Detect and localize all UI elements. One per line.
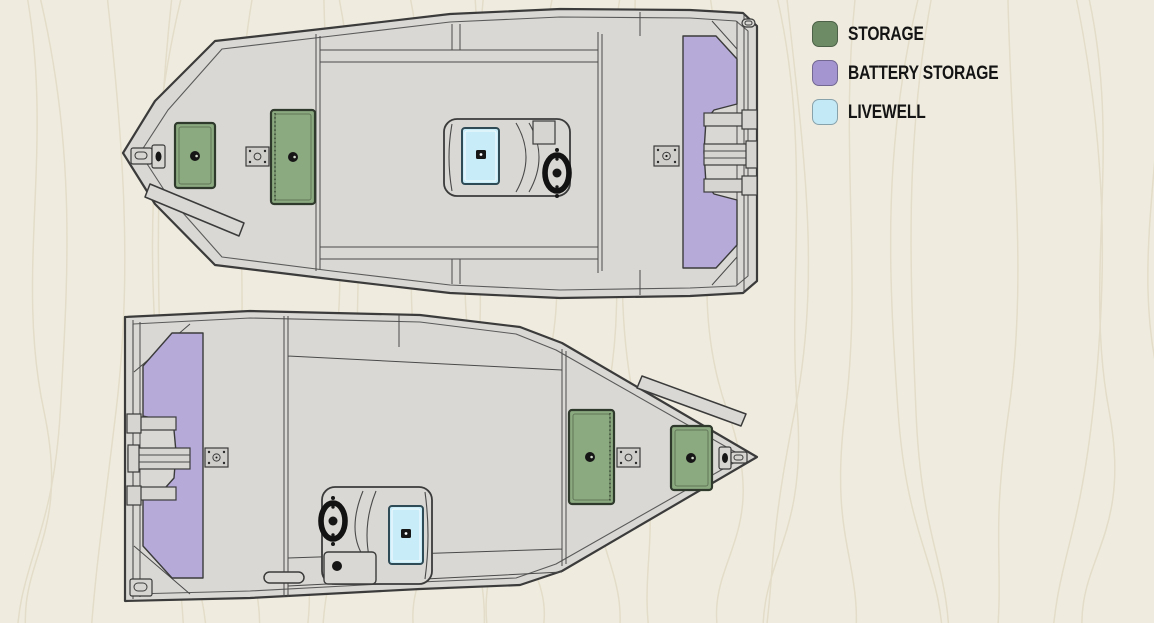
console-seat-base bbox=[324, 552, 376, 584]
storage-hatch-bow bbox=[671, 426, 712, 490]
legend-label-storage: STORAGE bbox=[848, 23, 924, 46]
contour-line bbox=[24, 0, 52, 623]
contour-line bbox=[763, 0, 799, 623]
legend-item-storage: STORAGE bbox=[812, 21, 1036, 47]
mounting-plate-bow bbox=[246, 147, 269, 166]
pedestal-base bbox=[332, 561, 342, 571]
legend-swatch-battery-storage bbox=[812, 60, 838, 86]
storage-hatch-mid bbox=[271, 110, 315, 204]
hatch-latch bbox=[585, 452, 595, 462]
contour-line bbox=[1082, 0, 1115, 623]
center-console bbox=[321, 487, 432, 584]
legend-label-battery-storage: BATTERY STORAGE bbox=[848, 62, 998, 85]
stern-cleat bbox=[742, 19, 755, 27]
mount-cap bbox=[746, 141, 757, 168]
hatch-latch bbox=[686, 453, 696, 463]
boat-top-floorplan bbox=[123, 9, 757, 298]
legend-swatch-livewell bbox=[812, 99, 838, 125]
hatch-latch bbox=[190, 151, 200, 161]
legend: STORAGE BATTERY STORAGE LIVEWELL bbox=[812, 21, 1036, 138]
center-console bbox=[444, 119, 570, 198]
mount-pad bbox=[127, 414, 141, 433]
contour-line bbox=[762, 0, 808, 623]
mount-pad bbox=[742, 176, 757, 195]
gauge-panel bbox=[533, 121, 555, 144]
storage-hatch-bow bbox=[175, 123, 215, 188]
hatch-latch bbox=[288, 152, 298, 162]
contour-line bbox=[1148, 0, 1154, 623]
mount-cap bbox=[128, 445, 139, 472]
boat-bottom-floorplan bbox=[125, 311, 757, 601]
mounting-plate-bow bbox=[617, 448, 640, 467]
legend-item-livewell: LIVEWELL bbox=[812, 99, 1036, 125]
mount-pad bbox=[127, 486, 141, 505]
bow-fixture bbox=[131, 145, 165, 168]
storage-hatch-mid bbox=[569, 410, 614, 504]
legend-swatch-storage bbox=[812, 21, 838, 47]
mounting-plate-stern bbox=[654, 146, 679, 166]
outboard-motor-mount bbox=[704, 110, 757, 195]
mount-pad bbox=[742, 110, 757, 129]
mounting-plate-stern bbox=[205, 448, 228, 467]
drain-fixture bbox=[130, 579, 152, 596]
grab-handle bbox=[264, 572, 304, 583]
contour-line bbox=[1051, 0, 1102, 623]
contour-line bbox=[89, 0, 125, 623]
boat-floorplan-canvas: STORAGE BATTERY STORAGE LIVEWELL bbox=[0, 0, 1154, 623]
contour-line bbox=[16, 0, 67, 623]
legend-item-battery-storage: BATTERY STORAGE bbox=[812, 60, 1036, 86]
legend-label-livewell: LIVEWELL bbox=[848, 101, 926, 124]
